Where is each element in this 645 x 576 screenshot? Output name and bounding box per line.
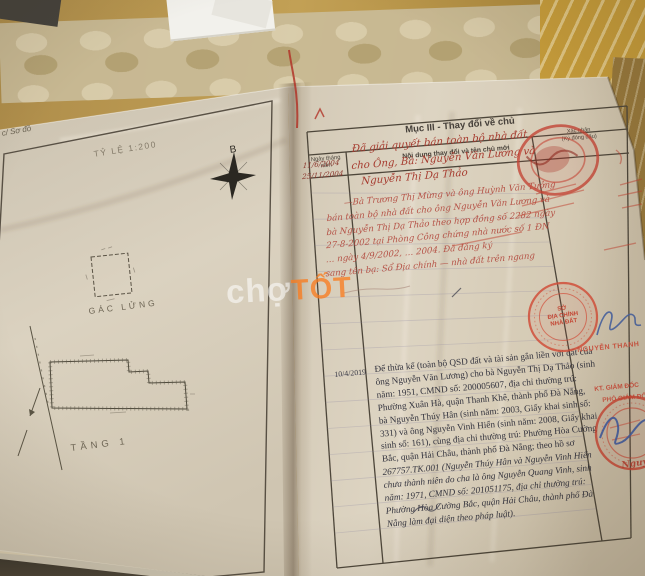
plan-frame-border (0, 101, 272, 576)
watermark-orange-part: TỐT (290, 272, 353, 307)
road-line (18, 326, 62, 470)
table-grid (307, 106, 631, 568)
page-wrinkles (0, 100, 520, 566)
compass-north-label: B (229, 144, 237, 156)
entry3-typed-text-b: 267757.TK.001 (Nguyễn Thúy Hân và Nguyễn… (382, 444, 645, 531)
photo-scene: c/ Sơ đồ TỶ LỆ 1:200 B GÁC LỬNG TẦNG 1 M… (0, 0, 645, 576)
entry3-date: 10/4/2019 (334, 367, 366, 379)
fabric-dark-bottom (0, 538, 265, 576)
book-spine-shadow (278, 82, 312, 576)
chotot-watermark: chợTỐT (225, 267, 353, 312)
round-stamp-top (512, 118, 604, 201)
right-page (288, 77, 645, 576)
blue-signature-2 (600, 418, 645, 444)
deputy-title-stamp: PHÓ GIÁM ĐỐC (602, 392, 645, 404)
left-page (0, 87, 299, 576)
entry3-typed-text-a: Để thừa kế (toàn bộ QSD đất và tài sản g… (374, 341, 645, 466)
pen-flourish (414, 504, 440, 512)
pen-tick-mark (452, 288, 461, 297)
plan-scale-label: TỶ LỆ 1:200 (93, 139, 158, 159)
office-stamp-text: SỞ ĐỊA CHÍNH NHÀ ĐẤT (539, 303, 587, 330)
entry1-handwritten-text: Đã giải quyết bán toàn bộ nhà đất cho Ôn… (351, 122, 591, 192)
column-header-date: Ngày tháng năm (304, 154, 349, 172)
faint-handwriting-trace (344, 286, 410, 293)
round-stamp-office (525, 279, 602, 356)
red-check-mark (315, 109, 324, 119)
kt-title-stamp: KT. GIÁM ĐỐC (594, 382, 639, 393)
plan-corner-label: c/ Sơ đồ (1, 124, 32, 138)
floor1-label: TẦNG 1 (70, 436, 129, 454)
floor1-outline (50, 355, 195, 413)
round-stamp-bottom (596, 397, 645, 469)
officer-name-stamp: NGUYỄN THANH (577, 341, 640, 354)
mezzanine-outline (83, 245, 137, 303)
ruled-lines (311, 193, 596, 533)
column-header-content: Nội dung thay đổi và tên chủ mới (366, 142, 546, 164)
signer-name-fragment: Nguy (621, 457, 645, 471)
entry2-handwritten-text: —Bà Trương Thị Mừng và ông Huỳnh Văn Tưở… (326, 175, 598, 282)
watermark-white-part: chợ (225, 270, 292, 310)
compass-icon (210, 152, 256, 200)
mezzanine-label: GÁC LỬNG (88, 298, 158, 316)
entry1-dates: 11/6/2004 25/11/2004 (302, 156, 344, 182)
